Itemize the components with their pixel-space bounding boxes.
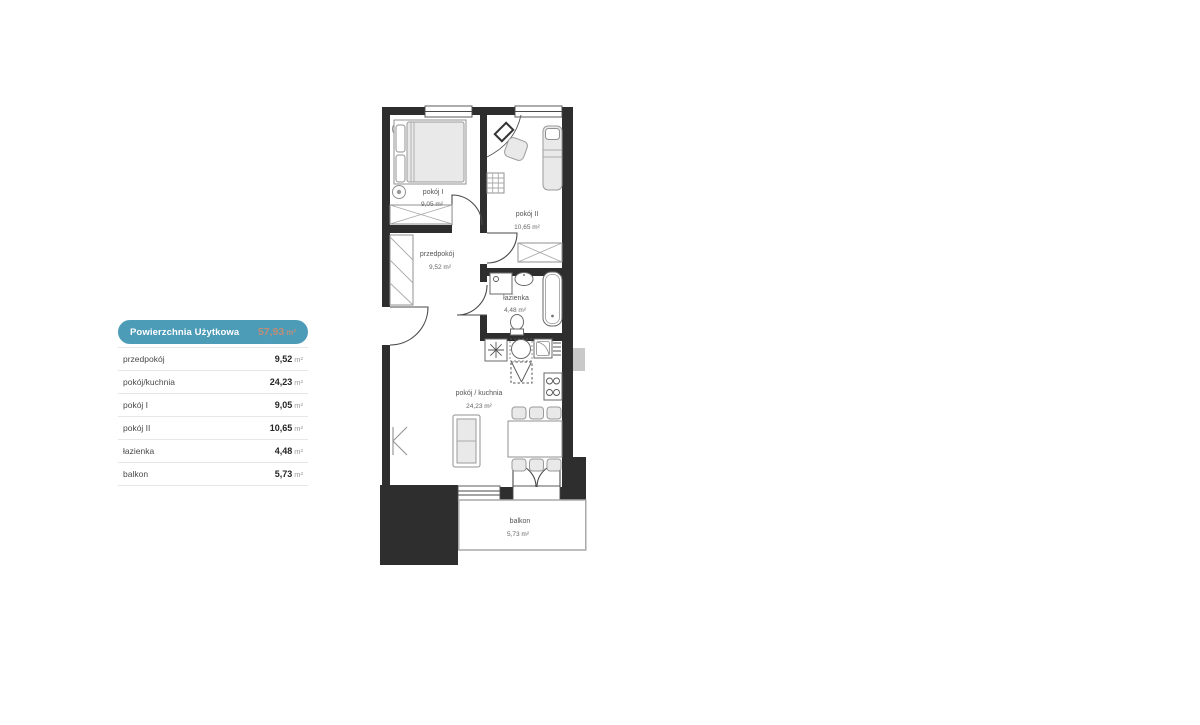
bathtub [543,272,562,326]
counter-hatch [553,343,561,355]
bed-single [543,126,562,190]
room-label: przedpokój [420,251,455,258]
row-value: 10,65m² [270,423,303,433]
total-area-unit: m² [286,328,296,337]
row-number: 9,52 [275,354,293,364]
bed-double [394,120,466,184]
total-area-value: 57,93m² [258,326,296,338]
row-number: 9,05 [275,400,293,410]
dishwasher [511,362,532,383]
row-value: 5,73m² [275,469,303,479]
room-area: 9,05 m² [421,201,444,208]
window-kuchnia [458,486,500,500]
sofa [453,415,480,467]
page: Powierzchnia Użytkowa 57,93m² przedpokój… [0,0,1200,725]
stove [544,373,562,400]
row-value: 4,48m² [275,446,303,456]
room-area: 5,73 m² [507,531,530,538]
tv-icon [393,427,407,455]
table-row: przedpokój 9,52m² [118,348,308,371]
dining-table [508,421,562,457]
washing-machine [490,273,512,294]
kitchen-sink [510,339,532,361]
row-unit: m² [294,424,303,433]
entrance-door [390,307,428,345]
hood-hob [485,339,507,361]
row-unit: m² [294,470,303,479]
room-pokoj2-furniture [487,115,562,262]
wardrobe [390,235,413,305]
wardrobe [518,243,562,262]
table-row: pokój II 10,65m² [118,417,308,440]
row-label: przedpokój [123,354,165,364]
room-label: balkon [510,518,531,525]
row-number: 24,23 [270,377,293,387]
row-value: 9,52m² [275,354,303,364]
desk-chair [503,136,529,162]
window-pokoj2 [515,106,562,117]
row-value: 24,23m² [270,377,303,387]
area-table-rows: przedpokój 9,52m² pokój/kuchnia 24,23m² … [118,347,308,486]
bathroom-fixtures [490,272,562,335]
shelf-unit [487,173,504,193]
room-label: łazienka [503,295,529,302]
room-area: 9,52 m² [429,264,452,271]
sink [515,273,533,286]
area-table: Powierzchnia Użytkowa 57,93m² przedpokój… [118,320,308,486]
row-label: pokój I [123,400,148,410]
row-number: 5,73 [275,469,293,479]
room-label: pokój / kuchnia [456,390,503,397]
toilet [511,315,524,336]
table-row: pokój/kuchnia 24,23m² [118,371,308,394]
door-lazienka [457,285,487,315]
floor-plan: pokój I 9,05 m² pokój II 10,65 m² przedp… [380,105,590,570]
table-row: balkon 5,73m² [118,463,308,486]
room-area: 10,65 m² [514,224,540,231]
hall-furniture [390,235,413,305]
area-table-header: Powierzchnia Użytkowa 57,93m² [118,320,308,344]
row-label: balkon [123,469,148,479]
room-area: 24,23 m² [466,403,492,410]
row-value: 9,05m² [275,400,303,410]
table-row: pokój I 9,05m² [118,394,308,417]
row-label: pokój/kuchnia [123,377,175,387]
shaft [573,348,585,371]
room-label: pokój I [423,189,444,196]
row-label: łazienka [123,446,154,456]
row-number: 10,65 [270,423,293,433]
table-row: łazienka 4,48m² [118,440,308,463]
row-unit: m² [294,378,303,387]
row-unit: m² [294,355,303,364]
room-label: pokój II [516,211,539,218]
room-area: 4,48 m² [504,307,527,314]
door-pokoj2 [487,233,517,263]
row-number: 4,48 [275,446,293,456]
door-pokoj1 [452,195,482,225]
window-pokoj1 [425,106,472,117]
fridge [534,339,552,358]
total-area-number: 57,93 [258,326,284,338]
living-furniture [393,407,562,471]
total-area-label: Powierzchnia Użytkowa [130,327,239,338]
row-unit: m² [294,447,303,456]
balcony-door-sill [513,486,560,500]
room-pokoj1-furniture [390,120,466,224]
balcony-outline [459,500,586,550]
row-unit: m² [294,401,303,410]
row-label: pokój II [123,423,150,433]
